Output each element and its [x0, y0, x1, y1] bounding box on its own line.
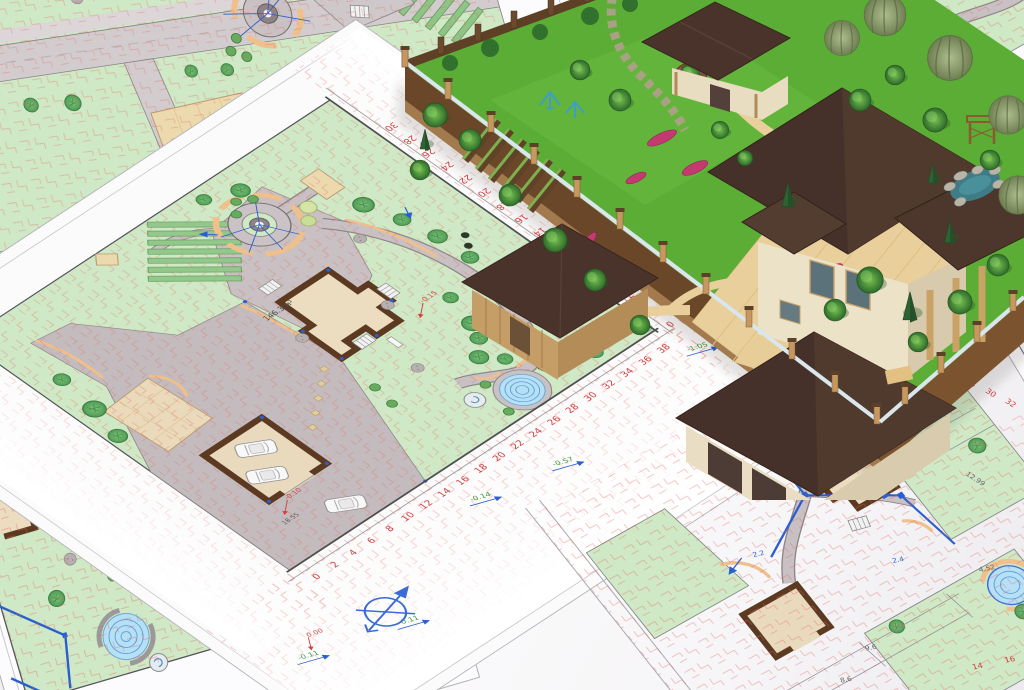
landscape-design-board: 262830: [0, 0, 1024, 690]
render-3d: [390, 0, 1024, 500]
